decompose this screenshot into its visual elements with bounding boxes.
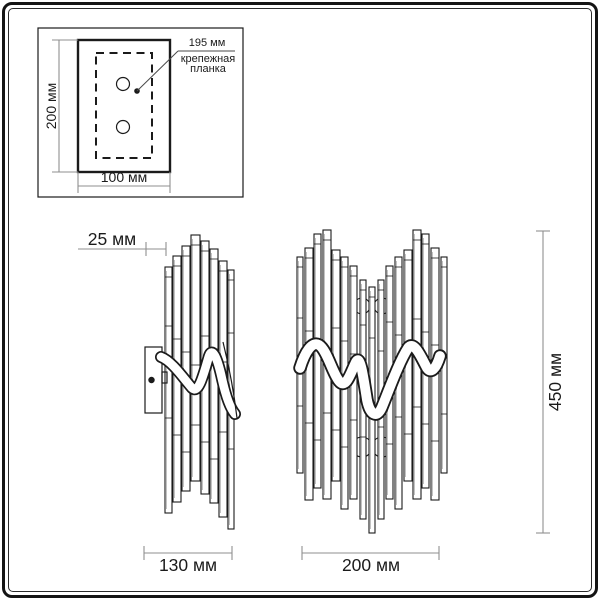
crystal-rod — [191, 235, 200, 481]
plate-annotation-line2: планка — [190, 63, 227, 75]
crystal-rod — [305, 248, 313, 500]
plate-length-label: 195 мм — [189, 37, 226, 49]
mounting-plate-inset: 195 мм крепежная планка 200 мм 100 мм — [38, 28, 243, 197]
dimension-diagram-canvas: 195 мм крепежная планка 200 мм 100 мм 25… — [0, 0, 600, 600]
front-view-rods — [297, 230, 447, 533]
front-width-label: 200 мм — [342, 555, 400, 575]
mounting-hole-bottom — [117, 121, 130, 134]
crystal-rod — [314, 234, 321, 488]
side-depth-label: 25 мм — [88, 229, 136, 249]
mounting-plate-outline — [78, 40, 170, 172]
plate-height-label: 200 мм — [43, 83, 59, 130]
bracket-screw-dot — [148, 377, 154, 383]
mounting-hole-top — [117, 78, 130, 91]
technical-drawing: 195 мм крепежная планка 200 мм 100 мм 25… — [0, 0, 600, 600]
front-height-label: 450 мм — [545, 353, 565, 411]
leader-line — [137, 51, 178, 91]
side-width-label: 130 мм — [159, 555, 217, 575]
crystal-rod — [165, 267, 172, 513]
mounting-plate-dashed-outline — [96, 53, 152, 158]
plate-width-label: 100 мм — [101, 169, 148, 185]
front-view: 200 мм 450 мм — [297, 230, 565, 575]
side-view: 25 мм 130 мм — [78, 229, 237, 575]
